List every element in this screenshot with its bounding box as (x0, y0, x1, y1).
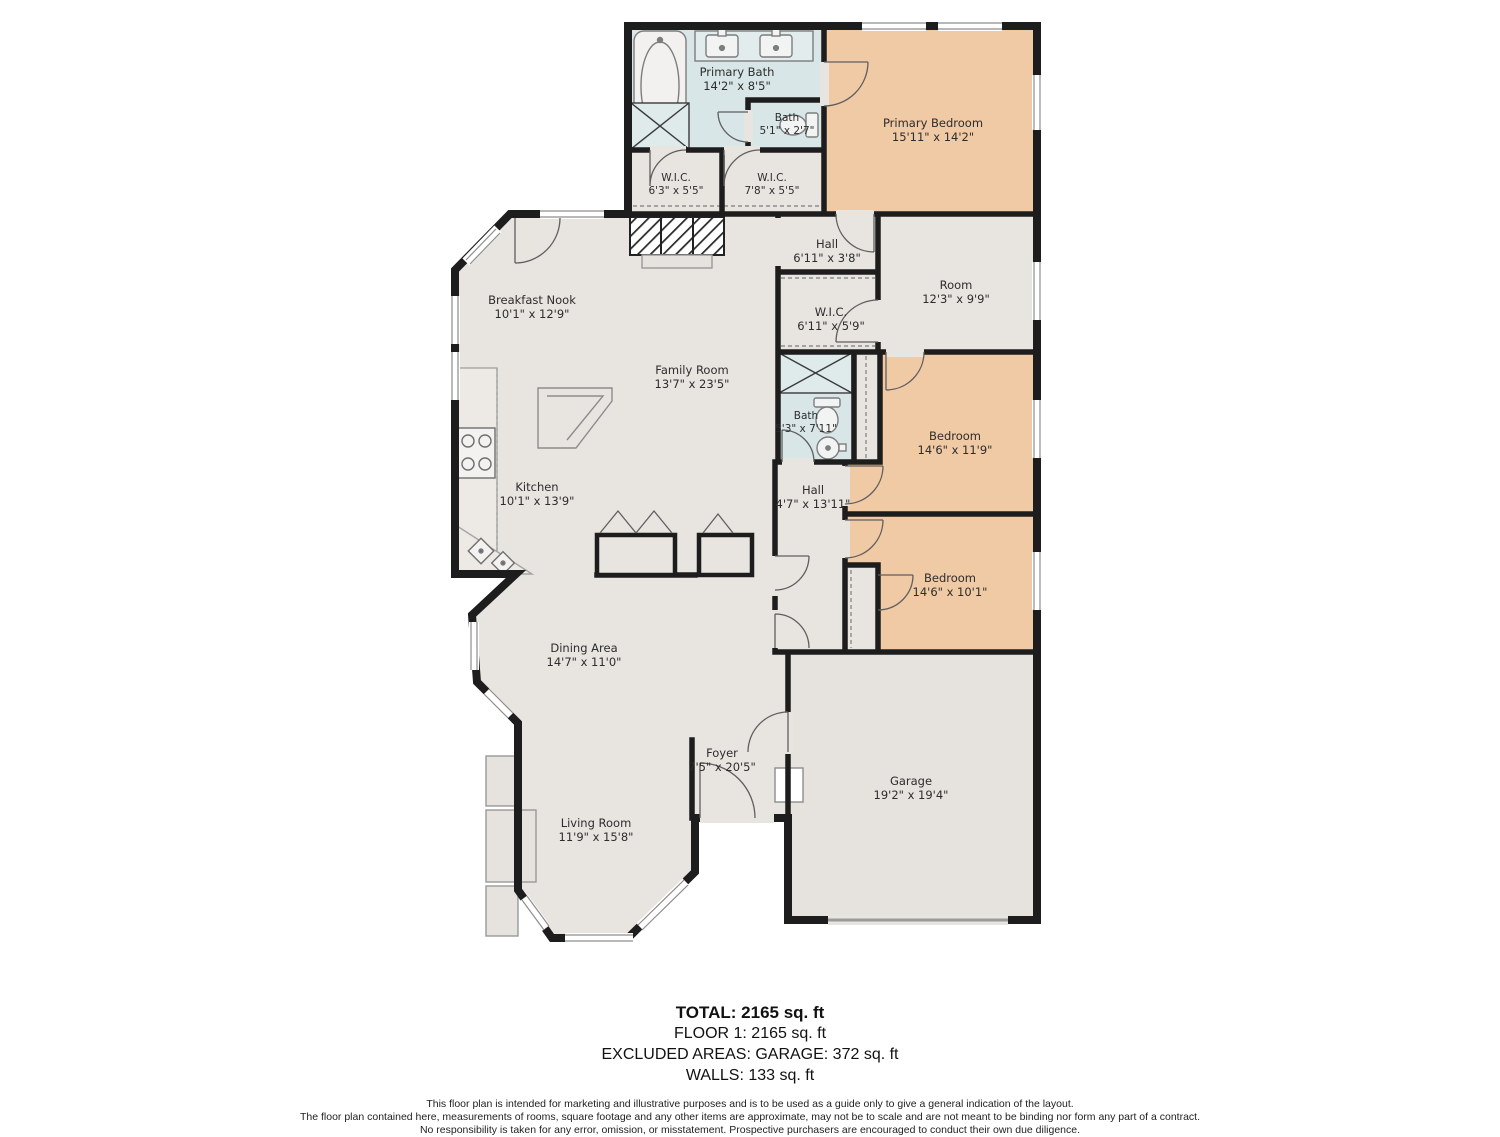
footer: TOTAL: 2165 sq. ft FLOOR 1: 2165 sq. ft … (0, 1002, 1500, 1137)
svg-text:Breakfast Nook: Breakfast Nook (488, 293, 576, 307)
svg-text:Bath: Bath (794, 410, 818, 422)
fireplace-icon (630, 217, 724, 268)
svg-text:11'9" x 15'8": 11'9" x 15'8" (559, 830, 634, 844)
svg-text:Primary Bath: Primary Bath (700, 65, 775, 79)
label-primary-bath: Primary Bath 14'2" x 8'5" (700, 65, 775, 93)
label-primary-bedroom: Primary Bedroom 15'11" x 14'2" (883, 116, 983, 144)
svg-text:Foyer: Foyer (706, 746, 738, 760)
disclaimer-line-1: This floor plan is intended for marketin… (0, 1098, 1500, 1111)
svg-text:Bedroom: Bedroom (924, 571, 976, 585)
svg-text:Garage: Garage (890, 774, 932, 788)
svg-text:4'7" x 13'11": 4'7" x 13'11" (776, 497, 851, 511)
svg-text:10'1" x 13'9": 10'1" x 13'9" (500, 494, 575, 508)
svg-text:5'3" x 7'11": 5'3" x 7'11" (775, 423, 837, 435)
svg-text:14'7" x 11'0": 14'7" x 11'0" (547, 655, 622, 669)
svg-text:13'7" x 23'5": 13'7" x 23'5" (655, 377, 730, 391)
disclaimer-line-3: No responsibility is taken for any error… (0, 1124, 1500, 1137)
shower-icon (631, 103, 689, 149)
double-vanity-sink-icon (695, 28, 813, 61)
label-dining-area: Dining Area 14'7" x 11'0" (547, 641, 622, 669)
svg-text:Bedroom: Bedroom (929, 429, 981, 443)
svg-text:12'3" x 9'9": 12'3" x 9'9" (922, 292, 990, 306)
svg-text:Bath: Bath (775, 112, 799, 124)
svg-text:Dining Area: Dining Area (550, 641, 617, 655)
svg-text:5'1" x 2'7": 5'1" x 2'7" (759, 125, 814, 137)
svg-text:Kitchen: Kitchen (515, 480, 558, 494)
svg-text:14'6" x 11'9": 14'6" x 11'9" (918, 443, 993, 457)
floorplan-canvas: Primary Bath 14'2" x 8'5" Bath 5'1" x 2'… (0, 0, 1500, 1125)
svg-text:W.I.C.: W.I.C. (757, 172, 787, 184)
svg-text:Hall: Hall (802, 483, 824, 497)
closet-boxes (597, 535, 752, 575)
total-area-text: TOTAL: 2165 sq. ft (0, 1002, 1500, 1023)
svg-text:7'5" x 20'5": 7'5" x 20'5" (688, 760, 756, 774)
svg-text:14'6" x 10'1": 14'6" x 10'1" (913, 585, 988, 599)
svg-text:Primary Bedroom: Primary Bedroom (883, 116, 983, 130)
svg-text:Family Room: Family Room (655, 363, 728, 377)
bedroom-2-closet-floor (845, 565, 878, 652)
svg-text:6'3" x 5'5": 6'3" x 5'5" (648, 185, 703, 197)
label-living-room: Living Room 11'9" x 15'8" (559, 816, 634, 844)
excluded-area-text: EXCLUDED AREAS: GARAGE: 372 sq. ft (0, 1044, 1500, 1065)
svg-text:Room: Room (940, 278, 973, 292)
svg-text:6'11" x 3'8": 6'11" x 3'8" (793, 251, 861, 265)
svg-text:7'8" x 5'5": 7'8" x 5'5" (744, 185, 799, 197)
svg-text:W.I.C.: W.I.C. (815, 305, 847, 319)
svg-text:6'11" x 5'9": 6'11" x 5'9" (797, 319, 865, 333)
svg-text:Living Room: Living Room (561, 816, 632, 830)
svg-text:15'11" x 14'2": 15'11" x 14'2" (892, 130, 974, 144)
walls-area-text: WALLS: 133 sq. ft (0, 1065, 1500, 1086)
disclaimer-line-2: The floor plan contained here, measureme… (0, 1111, 1500, 1124)
svg-text:Hall: Hall (816, 237, 838, 251)
shower-2-icon (779, 353, 852, 393)
label-family-room: Family Room 13'7" x 23'5" (655, 363, 730, 391)
disclaimer-block: This floor plan is intended for marketin… (0, 1098, 1500, 1137)
svg-text:14'2" x 8'5": 14'2" x 8'5" (703, 79, 771, 93)
label-breakfast-nook: Breakfast Nook 10'1" x 12'9" (488, 293, 576, 321)
svg-text:W.I.C.: W.I.C. (661, 172, 691, 184)
svg-text:10'1" x 12'9": 10'1" x 12'9" (495, 307, 570, 321)
floor1-area-text: FLOOR 1: 2165 sq. ft (0, 1023, 1500, 1044)
svg-text:19'2" x 19'4": 19'2" x 19'4" (874, 788, 949, 802)
stove-icon (457, 428, 495, 478)
closet-strip-floor (854, 352, 880, 462)
